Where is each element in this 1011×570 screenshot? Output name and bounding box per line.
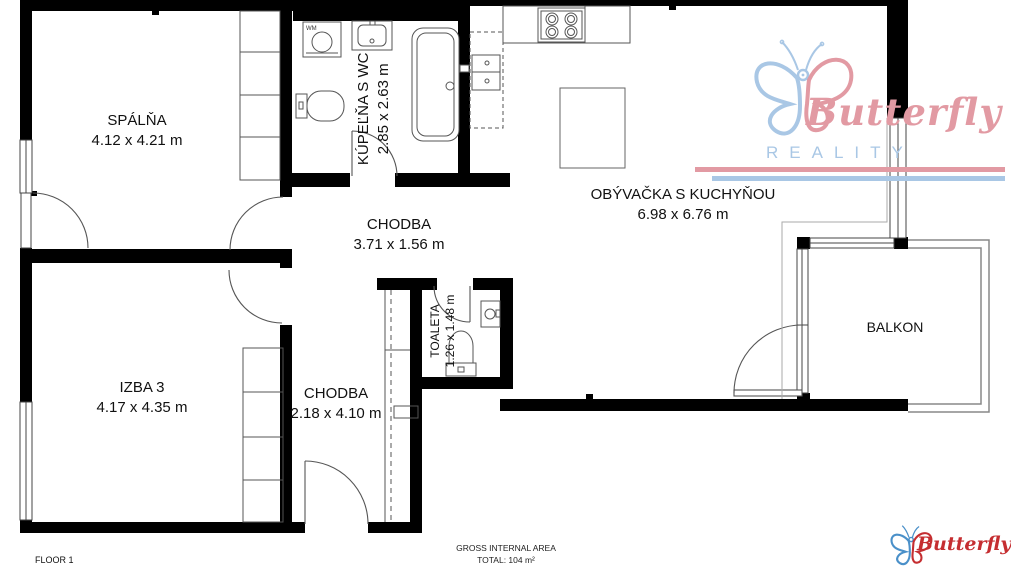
room-dims: 3.71 x 1.56 m — [329, 235, 469, 255]
izba3-door-arc — [229, 270, 282, 323]
room-dims: 2.85 x 2.63 m — [374, 39, 394, 179]
floorplan-canvas: WM — [0, 0, 1011, 570]
room-label-toaleta: TOALETA 1.26 x 1.48 m — [428, 276, 458, 386]
room-name: KÚPEĽŇA S WC — [354, 39, 374, 179]
toaleta-sink — [481, 301, 500, 327]
footer-wordmark: Butterfly — [917, 533, 1011, 555]
room-label-obyvacka: OBÝVAČKA S KUCHYŇOU 6.98 x 6.76 m — [563, 185, 803, 225]
room-name: CHODBA — [329, 215, 469, 235]
floor-label: FLOOR 1 — [35, 555, 74, 565]
balcony-side-window — [797, 249, 808, 325]
room-label-balkon: BALKON — [845, 318, 945, 336]
kitchen-table — [560, 88, 625, 168]
watermark-subtitle: REALITY — [766, 143, 914, 163]
room-dims: 2.18 x 4.10 m — [266, 404, 406, 424]
izba3-window — [20, 402, 32, 520]
bedroom-wardrobe — [240, 11, 280, 180]
watermark-blue-line — [712, 176, 1005, 181]
bedroom-window — [20, 140, 32, 193]
bathtub — [412, 28, 459, 141]
area-note-title: GROSS INTERNAL AREA — [406, 543, 606, 555]
room-name: CHODBA — [266, 384, 406, 404]
room-dims: 4.17 x 4.35 m — [62, 398, 222, 418]
room-label-kupelna: KÚPEĽŇA S WC 2.85 x 2.63 m — [354, 39, 394, 179]
room-label-izba3: IZBA 3 4.17 x 4.35 m — [62, 378, 222, 418]
bedroom-glazed-door — [21, 193, 31, 248]
area-note-total: TOTAL: 104 m² — [406, 555, 606, 567]
room-name: SPÁLŇA — [57, 111, 217, 131]
floorplan-drawing: WM — [0, 0, 1011, 570]
watermark-left-wing — [756, 63, 800, 133]
stove — [538, 8, 585, 42]
bedroom-exterior-door-arc — [33, 193, 88, 248]
washing-machine: WM — [303, 22, 341, 57]
room-dims: 4.12 x 4.21 m — [57, 131, 217, 151]
room-label-chodba-upper: CHODBA 3.71 x 1.56 m — [329, 215, 469, 255]
washing-machine-label: WM — [306, 26, 317, 32]
bathroom-toilet — [296, 91, 344, 121]
balcony-door-frame — [797, 325, 808, 393]
entrance-door — [305, 461, 368, 524]
area-note: GROSS INTERNAL AREA TOTAL: 104 m² — [406, 543, 606, 567]
kitchen — [460, 6, 630, 168]
watermark-pink-line — [695, 167, 1005, 172]
room-name: IZBA 3 — [62, 378, 222, 398]
livingroom-balcony-window-horizontal — [810, 238, 894, 248]
watermark-wordmark: Butterfly — [806, 90, 1006, 134]
room-name: TOALETA — [428, 276, 443, 386]
room-label-chodba-lower: CHODBA 2.18 x 4.10 m — [266, 384, 406, 424]
room-name: OBÝVAČKA S KUCHYŇOU — [563, 185, 803, 205]
bedroom-door-arc — [230, 197, 283, 250]
footer-left-wing — [892, 535, 910, 564]
room-label-spalna: SPÁLŇA 4.12 x 4.21 m — [57, 111, 217, 151]
room-name: BALKON — [845, 318, 945, 336]
room-dims: 6.98 x 6.76 m — [563, 205, 803, 225]
walls — [20, 0, 908, 533]
balcony-door — [734, 325, 802, 396]
room-dims: 1.26 x 1.48 m — [443, 276, 458, 386]
izba3-wardrobe — [243, 348, 283, 522]
